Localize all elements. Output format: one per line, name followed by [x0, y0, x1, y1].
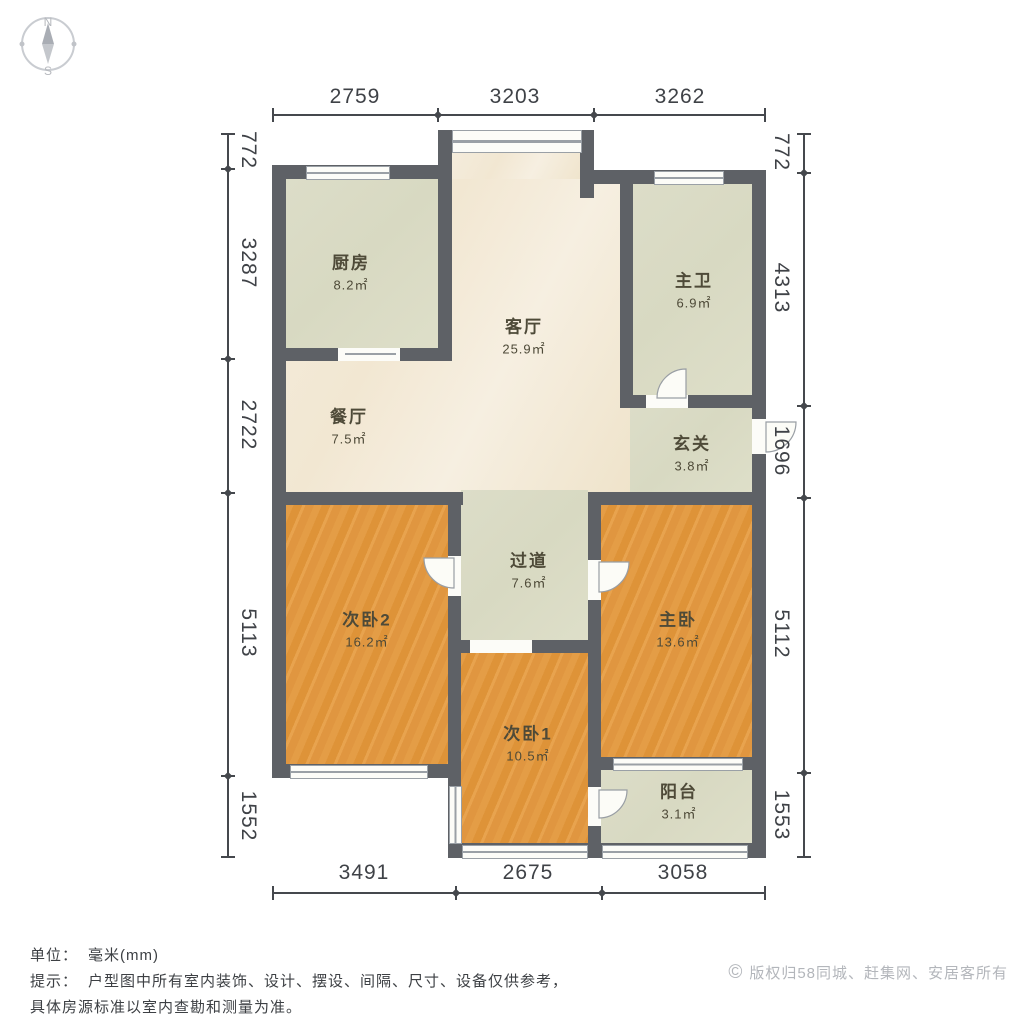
room-label-bedroom1: 次卧110.5㎡	[503, 720, 552, 765]
dim-tick	[764, 108, 766, 122]
disclaimer-line1: 提示：户型图中所有室内装饰、设计、摆设、间隔、尺寸、设备仅供参考，	[30, 970, 568, 991]
copyright-icon: ©	[728, 963, 743, 982]
dim-bottom-3: 3058	[658, 861, 709, 885]
master-bath-door-arc	[657, 369, 686, 398]
room-label-dining: 餐厅7.5㎡	[330, 403, 368, 448]
room-label-corridor: 过道7.6㎡	[510, 547, 548, 592]
dim-right-1: 772	[769, 133, 793, 171]
compass-icon: N S	[12, 10, 84, 82]
master-bed-door-arc	[599, 562, 629, 592]
dim-top-3: 3262	[655, 85, 706, 109]
dim-left-5: 1552	[236, 791, 260, 842]
balcony-door-arc	[599, 790, 627, 818]
dim-line-top	[272, 114, 766, 116]
disclaimer-text2: 具体房源标准以室内查勘和测量为准。	[30, 999, 302, 1016]
copyright-notice: © 版权归58同城、赶集网、安居客所有	[728, 962, 1008, 983]
compass-north-label: N	[44, 15, 53, 29]
dim-tick	[272, 108, 274, 122]
dim-bottom-2: 2675	[503, 861, 554, 885]
dim-right-4: 5112	[769, 609, 793, 658]
bedroom2-door-arc	[424, 558, 454, 588]
dim-right-3: 1696	[769, 426, 793, 477]
room-label-living: 客厅25.9㎡	[502, 313, 545, 358]
room-label-master-bath: 主卫6.9㎡	[675, 267, 713, 312]
unit-value: 毫米(mm)	[88, 947, 159, 964]
compass-south-label: S	[44, 64, 52, 78]
dim-top-1: 2759	[330, 85, 381, 109]
dim-line-bottom	[272, 892, 766, 894]
dim-left-3: 2722	[236, 400, 260, 451]
dim-left-4: 5113	[236, 608, 260, 657]
dim-tick	[797, 856, 811, 858]
dim-top-2: 3203	[490, 85, 541, 109]
room-label-bedroom2: 次卧216.2㎡	[342, 606, 391, 651]
dim-left-2: 3287	[236, 238, 260, 289]
floorplan-page: N S	[0, 0, 1034, 1034]
unit-note: 单位：毫米(mm)	[30, 944, 159, 965]
disclaimer-text1: 户型图中所有室内装饰、设计、摆设、间隔、尺寸、设备仅供参考，	[88, 973, 568, 990]
disclaimer-line2: 具体房源标准以室内查勘和测量为准。	[30, 996, 302, 1017]
dim-right-5: 1553	[769, 790, 793, 841]
copyright-text: 版权归58同城、赶集网、安居客所有	[749, 962, 1008, 983]
disclaimer-label: 提示：	[30, 973, 78, 990]
dim-tick	[764, 886, 766, 900]
room-label-balcony: 阳台3.1㎡	[660, 778, 698, 823]
room-label-master-bed: 主卧13.6㎡	[656, 606, 699, 651]
dim-tick	[272, 886, 274, 900]
room-label-entry: 玄关3.8㎡	[673, 430, 711, 475]
dim-left-1: 772	[236, 131, 260, 169]
dim-tick	[797, 133, 811, 135]
dim-tick	[221, 856, 235, 858]
dim-tick	[221, 133, 235, 135]
room-label-kitchen: 厨房8.2㎡	[332, 249, 370, 294]
dim-bottom-1: 3491	[339, 861, 390, 885]
dim-right-2: 4313	[769, 263, 793, 314]
unit-label: 单位：	[30, 947, 78, 964]
